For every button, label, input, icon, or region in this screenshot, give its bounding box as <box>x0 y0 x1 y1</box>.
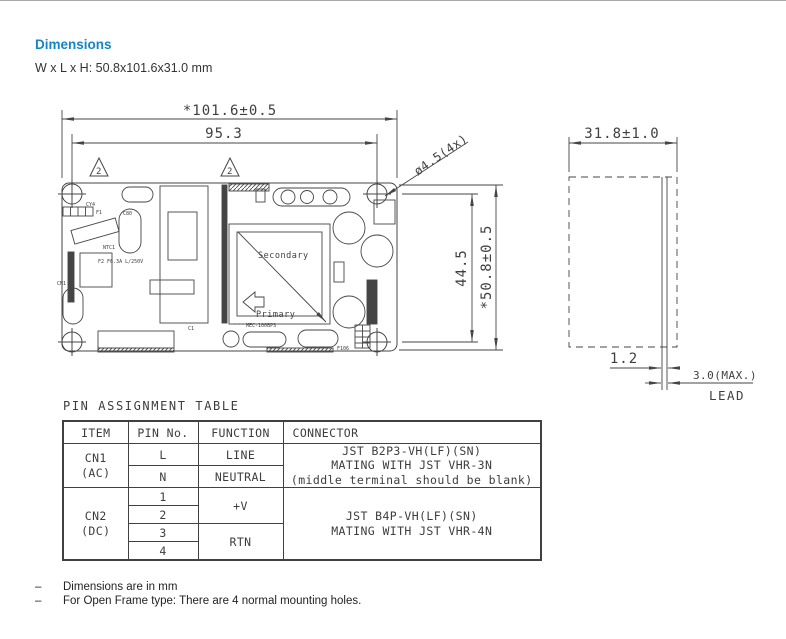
table-row: CN1 (AC) L LINE JST B2P3-VH(LF)(SN) MATI… <box>63 444 541 466</box>
transformer <box>229 224 330 324</box>
pin-table-title: PIN ASSIGNMENT TABLE <box>63 399 540 413</box>
note-bullet: – <box>35 595 63 607</box>
fuse-f1 <box>71 218 119 244</box>
dim-pcb-thickness: 1.2 <box>610 351 638 367</box>
polarity-arrow <box>243 292 264 312</box>
label-c80: C80 <box>123 211 132 217</box>
input-choke-core <box>168 212 197 260</box>
component-envelope <box>569 177 677 347</box>
label-secondary: Secondary <box>258 251 309 261</box>
hole-callout: ø4.5(4x) <box>411 131 470 178</box>
output-filter-bar <box>367 280 377 324</box>
small-component-2 <box>334 262 344 282</box>
col-header-pin: PIN No. <box>128 421 198 444</box>
inductor-2 <box>298 330 338 347</box>
output-diode-row <box>273 188 350 206</box>
cn2-pin-2: 2 <box>128 506 198 524</box>
electrolytic-capacitor-2 <box>361 235 393 267</box>
cn2-connector-cell: JST B4P-VH(LF)(SN) MATING WITH JST VHR-4… <box>283 488 541 561</box>
electrolytic-capacitor-1 <box>333 212 365 244</box>
lead-label: LEAD <box>709 388 745 403</box>
hatched-strip-bottom-left <box>98 348 174 352</box>
cn1-pin-l: L <box>128 444 198 466</box>
inductor-1 <box>243 332 286 347</box>
input-terminal-strip <box>63 207 93 216</box>
note-bullet: – <box>35 581 63 593</box>
datasheet-dimensions-page: Dimensions W x L x H: 50.8x101.6x31.0 mm <box>0 0 786 639</box>
pcb-side-view: 31.8±1.0 1.2 3.0(MAX.) LEAD <box>569 126 757 403</box>
label-c1: C1 <box>188 326 194 332</box>
cn2-item-cell: CN2 (DC) <box>63 488 128 561</box>
cn2-pin-3: 3 <box>128 524 198 542</box>
pin-assignment-table: ITEM PIN No. FUNCTION CONNECTOR CN1 (AC)… <box>62 420 542 561</box>
cn1-connector-cell: JST B2P3-VH(LF)(SN) MATING WITH JST VHR-… <box>283 444 541 488</box>
svg-text:2: 2 <box>227 167 232 177</box>
note-dimensions-mm: –Dimensions are in mm <box>35 581 735 593</box>
heatsink-bar <box>222 185 227 323</box>
cn2-function-rtn: RTN <box>198 524 283 561</box>
cn1-pin-n: N <box>128 466 198 488</box>
label-cy4: CY4 <box>86 202 95 208</box>
cn2-function-plus-v: +V <box>198 488 283 524</box>
col-header-item: ITEM <box>63 421 128 444</box>
dim-hole-pitch-width: 95.3 <box>205 126 243 142</box>
cn1-function-neutral: NEUTRAL <box>198 466 283 488</box>
input-choke <box>160 186 208 323</box>
label-f1: F1 <box>96 210 102 216</box>
cn2-pin-4: 4 <box>128 542 198 561</box>
label-primary: Primary <box>256 310 295 320</box>
dim-depth: 31.8±1.0 <box>584 126 659 142</box>
label-fuse2: F2 F6.3A L/250V <box>98 259 143 265</box>
cn1-item-cell: CN1 (AC) <box>63 444 128 488</box>
dim-lead-max: 3.0(MAX.) <box>693 369 757 382</box>
note-open-frame: –For Open Frame type: There are 4 normal… <box>35 595 735 607</box>
table-row: CN2 (DC) 1 +V JST B4P-VH(LF)(SN) MATING … <box>63 488 541 506</box>
film-capacitor <box>122 187 153 202</box>
col-header-connector: CONNECTOR <box>283 421 541 444</box>
note-marker-triangle-2: 2 <box>221 158 239 177</box>
col-header-function: FUNCTION <box>198 421 283 444</box>
silkscreen-labels: CY4 F1 C80 NTC1 F2 F6.3A L/250V CN1 C1 M… <box>57 202 349 352</box>
label-pcb-code: MEC-100BPS <box>246 323 276 329</box>
cn1-function-line: LINE <box>198 444 283 466</box>
bottom-connector <box>98 331 174 348</box>
fuse-f2 <box>150 280 194 294</box>
pcb-components <box>63 184 395 352</box>
dim-hole-pitch-height: 44.5 <box>454 249 470 287</box>
note-marker-triangle-1: 2 <box>90 158 108 177</box>
svg-text:2: 2 <box>96 167 101 177</box>
note-text: For Open Frame type: There are 4 normal … <box>63 595 361 607</box>
electrolytic-capacitor-3 <box>333 296 365 328</box>
note-text: Dimensions are in mm <box>63 581 177 593</box>
label-ntc1: NTC1 <box>103 245 115 251</box>
emi-filter-bar <box>68 252 74 302</box>
hatched-strip-bottom-right <box>267 348 333 352</box>
mounting-hole-bottom-right <box>363 328 391 356</box>
small-capacitor <box>223 331 239 347</box>
dim-overall-height: *50.8±0.5 <box>479 225 495 310</box>
label-cn1: CN1 <box>57 281 66 287</box>
label-f106: F106 <box>337 346 349 352</box>
pcb-top-view: CY4 F1 C80 NTC1 F2 F6.3A L/250V CN1 C1 M… <box>57 158 397 356</box>
hatched-strip-top <box>229 184 269 191</box>
pin-assignment-section: PIN ASSIGNMENT TABLE ITEM PIN No. FUNCTI… <box>62 399 540 561</box>
dim-overall-width: *101.6±0.5 <box>183 103 277 119</box>
cn2-pin-1: 1 <box>128 488 198 506</box>
